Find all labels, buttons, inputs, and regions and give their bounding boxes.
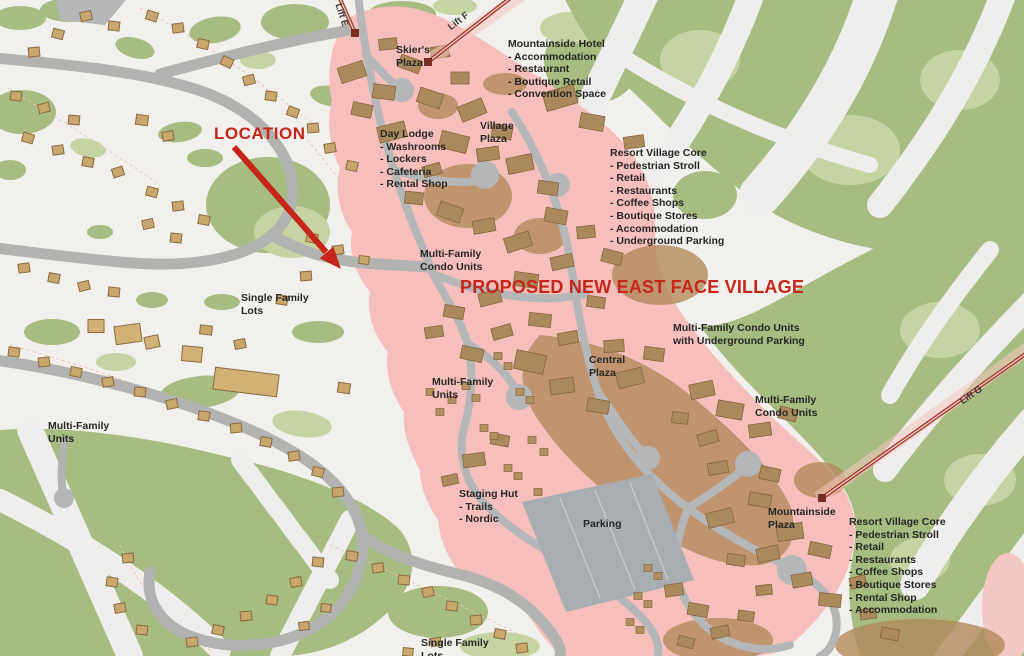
village_building — [424, 325, 443, 338]
house — [80, 10, 93, 21]
house — [136, 625, 148, 635]
village-plaza-label: Village Plaza — [480, 120, 514, 145]
large_building — [114, 323, 142, 344]
house — [186, 637, 198, 647]
house — [78, 280, 91, 291]
lift-e-terminal — [351, 29, 359, 37]
house — [38, 357, 50, 367]
condo-units-underground-parking-label: Multi-Family Condo Units with Undergroun… — [673, 322, 805, 347]
tiny_building — [540, 449, 548, 456]
tiny_building — [528, 437, 536, 444]
house — [102, 377, 114, 388]
house — [516, 643, 528, 653]
village_building — [372, 84, 396, 101]
village_building — [378, 38, 397, 51]
tiny_building — [626, 619, 634, 626]
house — [172, 23, 184, 33]
house — [422, 586, 435, 597]
house — [470, 615, 482, 625]
multi-family-units-west-label: Multi-Family Units — [48, 420, 109, 445]
house — [321, 603, 332, 612]
house — [122, 553, 134, 563]
house — [337, 382, 350, 394]
tiny_building — [634, 593, 642, 600]
village_building — [537, 180, 559, 196]
house — [212, 624, 225, 635]
proposed-village-banner: PROPOSED NEW EAST FACE VILLAGE — [460, 277, 804, 299]
house — [288, 451, 300, 461]
lift-g-terminal — [818, 494, 826, 502]
house — [170, 233, 182, 243]
village_building — [604, 339, 625, 352]
house — [332, 487, 344, 497]
house — [8, 347, 20, 357]
village_building — [462, 452, 486, 468]
tiny_building — [514, 473, 522, 480]
village_building — [737, 610, 754, 622]
house — [240, 611, 252, 621]
house — [108, 287, 120, 297]
tiny_building — [644, 601, 652, 608]
resort-master-plan-map: LOCATION PROPOSED NEW EAST FACE VILLAGE … — [0, 0, 1024, 656]
house — [300, 271, 312, 281]
central-plaza-label: Central Plaza — [589, 354, 625, 379]
house — [52, 145, 64, 155]
house — [198, 411, 210, 421]
village_building — [756, 584, 773, 596]
mountainside-plaza-label: Mountainside Plaza — [768, 506, 836, 531]
house — [135, 114, 148, 126]
village_building — [818, 592, 841, 607]
house — [286, 106, 299, 118]
tiny_building — [504, 465, 512, 472]
village_building — [451, 72, 469, 84]
tiny_building — [636, 627, 644, 634]
village_building — [549, 377, 575, 395]
tiny_building — [654, 573, 662, 580]
resort-village-core-north-label: Resort Village Core - Pedestrian Stroll … — [610, 147, 724, 248]
tiny_building — [490, 433, 498, 440]
house — [197, 38, 210, 49]
single-family-lots-west-label: Single Family Lots — [241, 292, 309, 317]
house — [359, 255, 370, 264]
location-callout: LOCATION — [214, 124, 306, 144]
house — [200, 325, 213, 335]
tiny_building — [504, 363, 512, 370]
tiny_building — [494, 353, 502, 360]
mountainside-hotel-label: Mountainside Hotel - Accommodation - Res… — [508, 38, 606, 101]
house — [298, 621, 309, 630]
house — [346, 551, 358, 562]
village_building — [671, 412, 688, 425]
tiny_building — [480, 425, 488, 432]
house — [10, 91, 22, 101]
house — [372, 563, 384, 573]
house — [21, 132, 34, 144]
large_building — [181, 346, 202, 363]
house — [28, 47, 40, 57]
large_building — [88, 320, 104, 333]
house — [312, 466, 325, 477]
multi-family-condo-units-east-label: Multi-Family Condo Units — [755, 394, 817, 419]
village_building — [528, 312, 551, 327]
house — [198, 215, 210, 226]
house — [230, 423, 242, 433]
large_building — [144, 335, 160, 350]
house — [166, 398, 179, 409]
house — [403, 647, 414, 656]
house — [312, 557, 324, 567]
house — [145, 10, 158, 22]
house — [290, 577, 302, 588]
house — [398, 575, 410, 585]
village_building — [576, 225, 595, 239]
parking-label: Parking — [583, 518, 622, 531]
house — [108, 21, 120, 31]
village_building — [664, 583, 683, 597]
day-lodge-label: Day Lodge - Washrooms - Lockers - Cafete… — [380, 128, 448, 191]
tiny_building — [534, 489, 542, 496]
tiny_building — [526, 397, 534, 404]
multi-family-units-central-label: Multi-Family Units — [432, 376, 493, 401]
house — [38, 102, 51, 113]
skiers-plaza-label: Skier's Plaza — [396, 44, 430, 69]
tiny_building — [436, 409, 444, 416]
village_building — [404, 191, 423, 205]
house — [134, 387, 146, 397]
house — [146, 186, 159, 197]
house — [307, 123, 319, 133]
tiny_building — [644, 565, 652, 572]
house — [114, 603, 126, 614]
village_building — [748, 422, 772, 438]
tiny_building — [516, 389, 524, 396]
house — [234, 339, 246, 350]
house — [82, 157, 94, 168]
resort-village-core-south-label: Resort Village Core - Pedestrian Stroll … — [849, 516, 946, 617]
multi-family-condo-units-west-label: Multi-Family Condo Units — [420, 248, 482, 273]
house — [18, 263, 30, 273]
house — [68, 115, 80, 125]
house — [346, 160, 359, 171]
house — [70, 366, 83, 377]
house — [162, 131, 174, 142]
single-family-lots-south-label: Single Family Lots — [421, 637, 489, 656]
house — [52, 28, 65, 40]
house — [106, 577, 118, 587]
house — [260, 437, 272, 448]
house — [243, 74, 256, 86]
staging-hut-label: Staging Hut - Trails - Nordic — [459, 488, 518, 526]
village_building — [643, 346, 665, 362]
house — [265, 91, 277, 101]
house — [142, 218, 155, 229]
village_building — [476, 146, 500, 162]
house — [111, 166, 124, 178]
house — [48, 273, 60, 284]
house — [446, 601, 458, 611]
house — [172, 201, 184, 211]
village-plaza-circle — [471, 161, 499, 189]
village_building — [726, 553, 745, 566]
house — [324, 143, 336, 154]
house — [266, 595, 278, 605]
house — [494, 629, 506, 640]
